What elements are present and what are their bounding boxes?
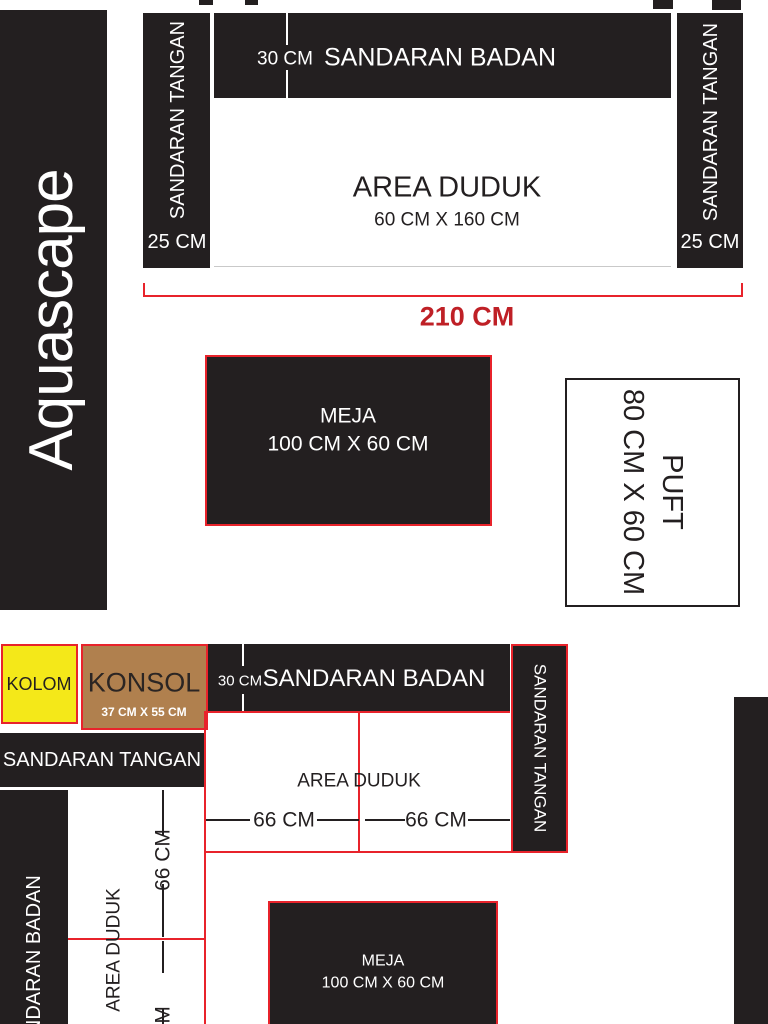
dim-line — [162, 884, 164, 937]
top-sofa-seat-edge — [214, 266, 671, 267]
bottom-sofa-armrest-left-label: SANDARAN TANGAN — [3, 750, 201, 770]
wing-segment2: 66 CM — [153, 1006, 174, 1024]
wing-seat-label: AREA DUDUK — [105, 888, 124, 1012]
bottom-sofa-seat-segment1: 66 CM — [253, 810, 315, 831]
dim-line — [317, 819, 359, 821]
page-crop-mark — [245, 0, 258, 5]
bottom-table-size: 100 CM X 60 CM — [322, 972, 445, 994]
top-sofa-width-value: 210 CM — [420, 304, 515, 331]
page-crop-mark — [653, 0, 673, 9]
right-edge-block — [734, 697, 768, 1024]
konsol-size: 37 CM X 55 CM — [101, 706, 186, 718]
wing-seat-divider — [68, 938, 206, 940]
konsol-label: KONSOL — [88, 670, 201, 697]
kolom-label: KOLOM — [6, 675, 71, 693]
dim-line — [365, 819, 405, 821]
dim-line — [206, 819, 250, 821]
bottom-table-label: MEJA — [322, 950, 445, 972]
top-sofa-backrest-tick — [286, 70, 288, 98]
top-sofa-seat-label: AREA DUDUK — [353, 174, 542, 203]
top-sofa-armrest-left-label: SANDARAN TANGAN — [168, 21, 188, 219]
top-sofa-backrest-label: SANDARAN BADAN — [324, 46, 556, 71]
dim-line — [468, 819, 510, 821]
brand-name: Aquascape — [21, 169, 83, 470]
puft-text: PUFT 80 CM X 60 CM — [613, 389, 691, 595]
top-sofa-armrest-left-size: 25 CM — [148, 232, 207, 252]
puft-label: PUFT — [652, 389, 691, 595]
bottom-sofa-backrest-depth: 30 CM — [218, 674, 262, 689]
bottom-table-text: MEJA 100 CM X 60 CM — [322, 950, 445, 993]
wing-backrest-label: SANDARAN BADAN — [24, 875, 44, 1024]
bottom-sofa-seat-bottom-border — [205, 851, 511, 853]
puft-size: 80 CM X 60 CM — [613, 389, 652, 595]
top-sofa-seat-size: 60 CM X 160 CM — [374, 211, 520, 230]
bottom-sofa-backrest-tick — [242, 694, 244, 711]
floorplan-page: Aquascape SANDARAN TANGAN 25 CM 30 CM SA… — [0, 0, 768, 1024]
bottom-sofa-seat-segment2: 66 CM — [405, 810, 467, 831]
page-crop-mark — [199, 0, 213, 5]
top-sofa-backrest-tick — [286, 13, 288, 45]
top-sofa-armrest-right-label: SANDARAN TANGAN — [701, 23, 721, 221]
bottom-sofa-seat-left-border — [204, 711, 206, 1024]
bottom-sofa-seat-label: AREA DUDUK — [297, 772, 421, 791]
page-crop-mark — [712, 0, 741, 10]
bottom-sofa-armrest-right-label: SANDARAN TANGAN — [532, 664, 549, 832]
top-sofa-armrest-right-size: 25 CM — [681, 232, 740, 252]
top-table-size: 100 CM X 60 CM — [267, 431, 428, 459]
top-table-text: MEJA 100 CM X 60 CM — [267, 403, 428, 460]
top-sofa-backrest-depth: 30 CM — [257, 50, 313, 69]
dim-line — [162, 941, 164, 973]
bottom-sofa-backrest-tick — [242, 644, 244, 666]
wing-segment1: 66 CM — [153, 829, 174, 891]
top-sofa-width-bracket — [143, 283, 743, 297]
bottom-sofa-backrest-label: SANDARAN BADAN — [263, 667, 486, 691]
top-table-label: MEJA — [267, 403, 428, 431]
